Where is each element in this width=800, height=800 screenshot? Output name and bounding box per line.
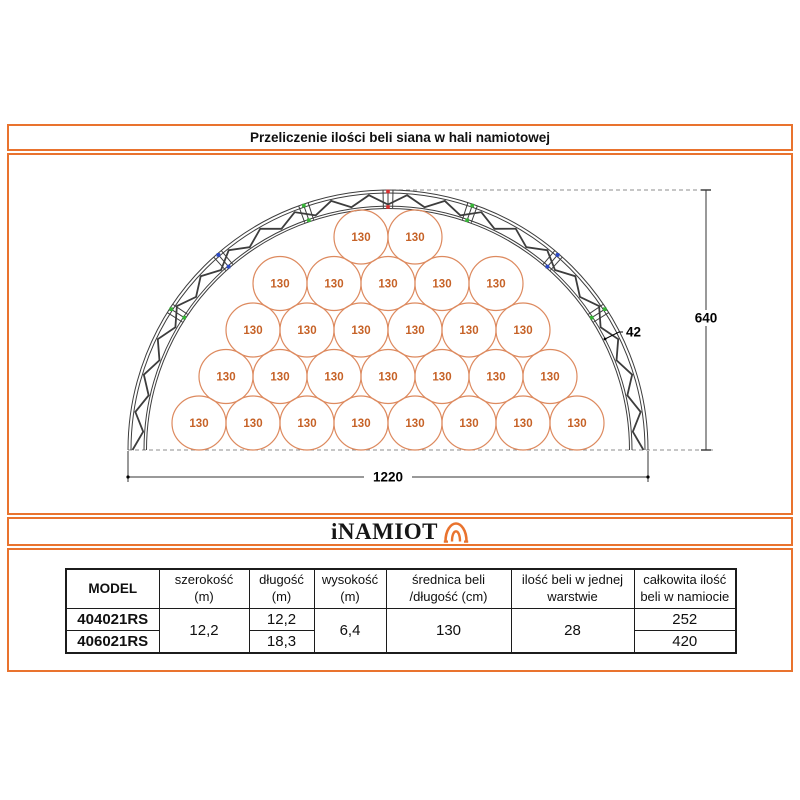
truss-joint-plate bbox=[167, 313, 182, 323]
hay-bale-diameter-label: 130 bbox=[351, 325, 370, 337]
hay-bale-diameter-label: 130 bbox=[243, 418, 262, 430]
truss-joint-plate bbox=[588, 304, 603, 314]
hay-bale-diameter-label: 130 bbox=[432, 372, 451, 384]
cell-total-2: 420 bbox=[634, 630, 736, 653]
hay-bale-diameter-label: 130 bbox=[243, 325, 262, 337]
hay-bale-diameter-label: 130 bbox=[297, 418, 316, 430]
hay-bale-diameter-label: 130 bbox=[351, 232, 370, 244]
hay-bale-diameter-label: 130 bbox=[351, 418, 370, 430]
hay-bale-diameter-label: 130 bbox=[513, 418, 532, 430]
col-header-bales-per-layer: ilość beli w jednej warstwie bbox=[511, 569, 634, 608]
height-dimension-label: 640 bbox=[695, 311, 718, 326]
col-header-total-bales: całkowita ilość beli w namiocie bbox=[634, 569, 736, 608]
truss-joint-marker bbox=[465, 218, 469, 222]
truss-joint-plate bbox=[593, 313, 608, 323]
cell-model-1: 404021RS bbox=[66, 608, 159, 630]
hay-bale-diameter-label: 130 bbox=[270, 372, 289, 384]
dim-tick bbox=[646, 475, 649, 478]
hay-bale-diameter-label: 130 bbox=[405, 418, 424, 430]
truss-joint-marker bbox=[169, 307, 173, 311]
hay-bale-diameter-label: 130 bbox=[567, 418, 586, 430]
cell-length-1: 12,2 bbox=[249, 608, 314, 630]
title-bar: Przeliczenie ilości beli siana w hali na… bbox=[7, 124, 793, 151]
tent-cross-section-diagram: 1301301301301301301301301301301301301301… bbox=[8, 153, 792, 515]
hay-bale-diameter-label: 130 bbox=[405, 232, 424, 244]
hay-bale-diameter-label: 130 bbox=[405, 325, 424, 337]
brand-logo-text: iNAMIOT bbox=[331, 520, 438, 543]
truss-chord-arc bbox=[128, 190, 648, 450]
hay-bale-diameter-label: 130 bbox=[486, 279, 505, 291]
hay-bale-diameter-label: 130 bbox=[459, 418, 478, 430]
cell-model-2: 406021RS bbox=[66, 630, 159, 653]
hay-bale-diameter-label: 130 bbox=[324, 279, 343, 291]
truss-joint-marker bbox=[307, 218, 311, 222]
truss-thickness-label: 42 bbox=[626, 325, 641, 340]
cell-length-2: 18,3 bbox=[249, 630, 314, 653]
hay-bale-diameter-label: 130 bbox=[324, 372, 343, 384]
tent-icon bbox=[443, 520, 469, 544]
hay-bale-diameter-label: 130 bbox=[432, 279, 451, 291]
truss-joint-marker bbox=[546, 265, 550, 269]
logo-bar: iNAMIOT bbox=[7, 517, 793, 546]
hay-bale-diameter-label: 130 bbox=[378, 372, 397, 384]
hay-bale-diameter-label: 130 bbox=[486, 372, 505, 384]
hay-bale-diameter-label: 130 bbox=[513, 325, 532, 337]
truss-joint-marker bbox=[470, 204, 474, 208]
cell-total-1: 252 bbox=[634, 608, 736, 630]
table-row: 404021RS 12,2 12,2 6,4 130 28 252 bbox=[66, 608, 736, 630]
dim-tick bbox=[126, 475, 129, 478]
col-header-bale-diameter: średnica beli /długość (cm) bbox=[386, 569, 511, 608]
table-header-row: MODEL szerokość (m) długość (m) wysokość… bbox=[66, 569, 736, 608]
cell-height: 6,4 bbox=[314, 608, 386, 653]
hay-bale-diameter-label: 130 bbox=[459, 325, 478, 337]
hay-bale-diameter-label: 130 bbox=[297, 325, 316, 337]
hay-bale-diameter-label: 130 bbox=[540, 372, 559, 384]
hay-bale-diameter-label: 130 bbox=[378, 279, 397, 291]
truss-joint-marker bbox=[217, 253, 221, 257]
hay-bale-diameter-label: 130 bbox=[216, 372, 235, 384]
width-dimension-label: 1220 bbox=[373, 470, 403, 485]
truss-joint-marker bbox=[386, 205, 390, 209]
col-header-height: wysokość (m) bbox=[314, 569, 386, 608]
page-title: Przeliczenie ilości beli siana w hali na… bbox=[250, 130, 550, 145]
truss-joint-marker bbox=[556, 253, 560, 257]
truss-joint-marker bbox=[302, 204, 306, 208]
truss-joint-marker bbox=[590, 316, 594, 320]
truss-joint-marker bbox=[227, 265, 231, 269]
spec-table: MODEL szerokość (m) długość (m) wysokość… bbox=[65, 568, 737, 654]
cell-bale-diameter: 130 bbox=[386, 608, 511, 653]
hay-bale-diameter-label: 130 bbox=[189, 418, 208, 430]
cell-bales-per-layer: 28 bbox=[511, 608, 634, 653]
truss-joint-marker bbox=[182, 316, 186, 320]
col-header-length: długość (m) bbox=[249, 569, 314, 608]
leader-dot bbox=[604, 338, 607, 341]
col-header-model: MODEL bbox=[66, 569, 159, 608]
cell-width: 12,2 bbox=[159, 608, 249, 653]
col-header-width: szerokość (m) bbox=[159, 569, 249, 608]
hay-bale-diameter-label: 130 bbox=[270, 279, 289, 291]
truss-joint-plate bbox=[173, 304, 188, 314]
truss-joint-marker bbox=[386, 190, 390, 194]
truss-joint-marker bbox=[603, 307, 607, 311]
spec-sheet-page: Przeliczenie ilości beli siana w hali na… bbox=[0, 0, 800, 800]
